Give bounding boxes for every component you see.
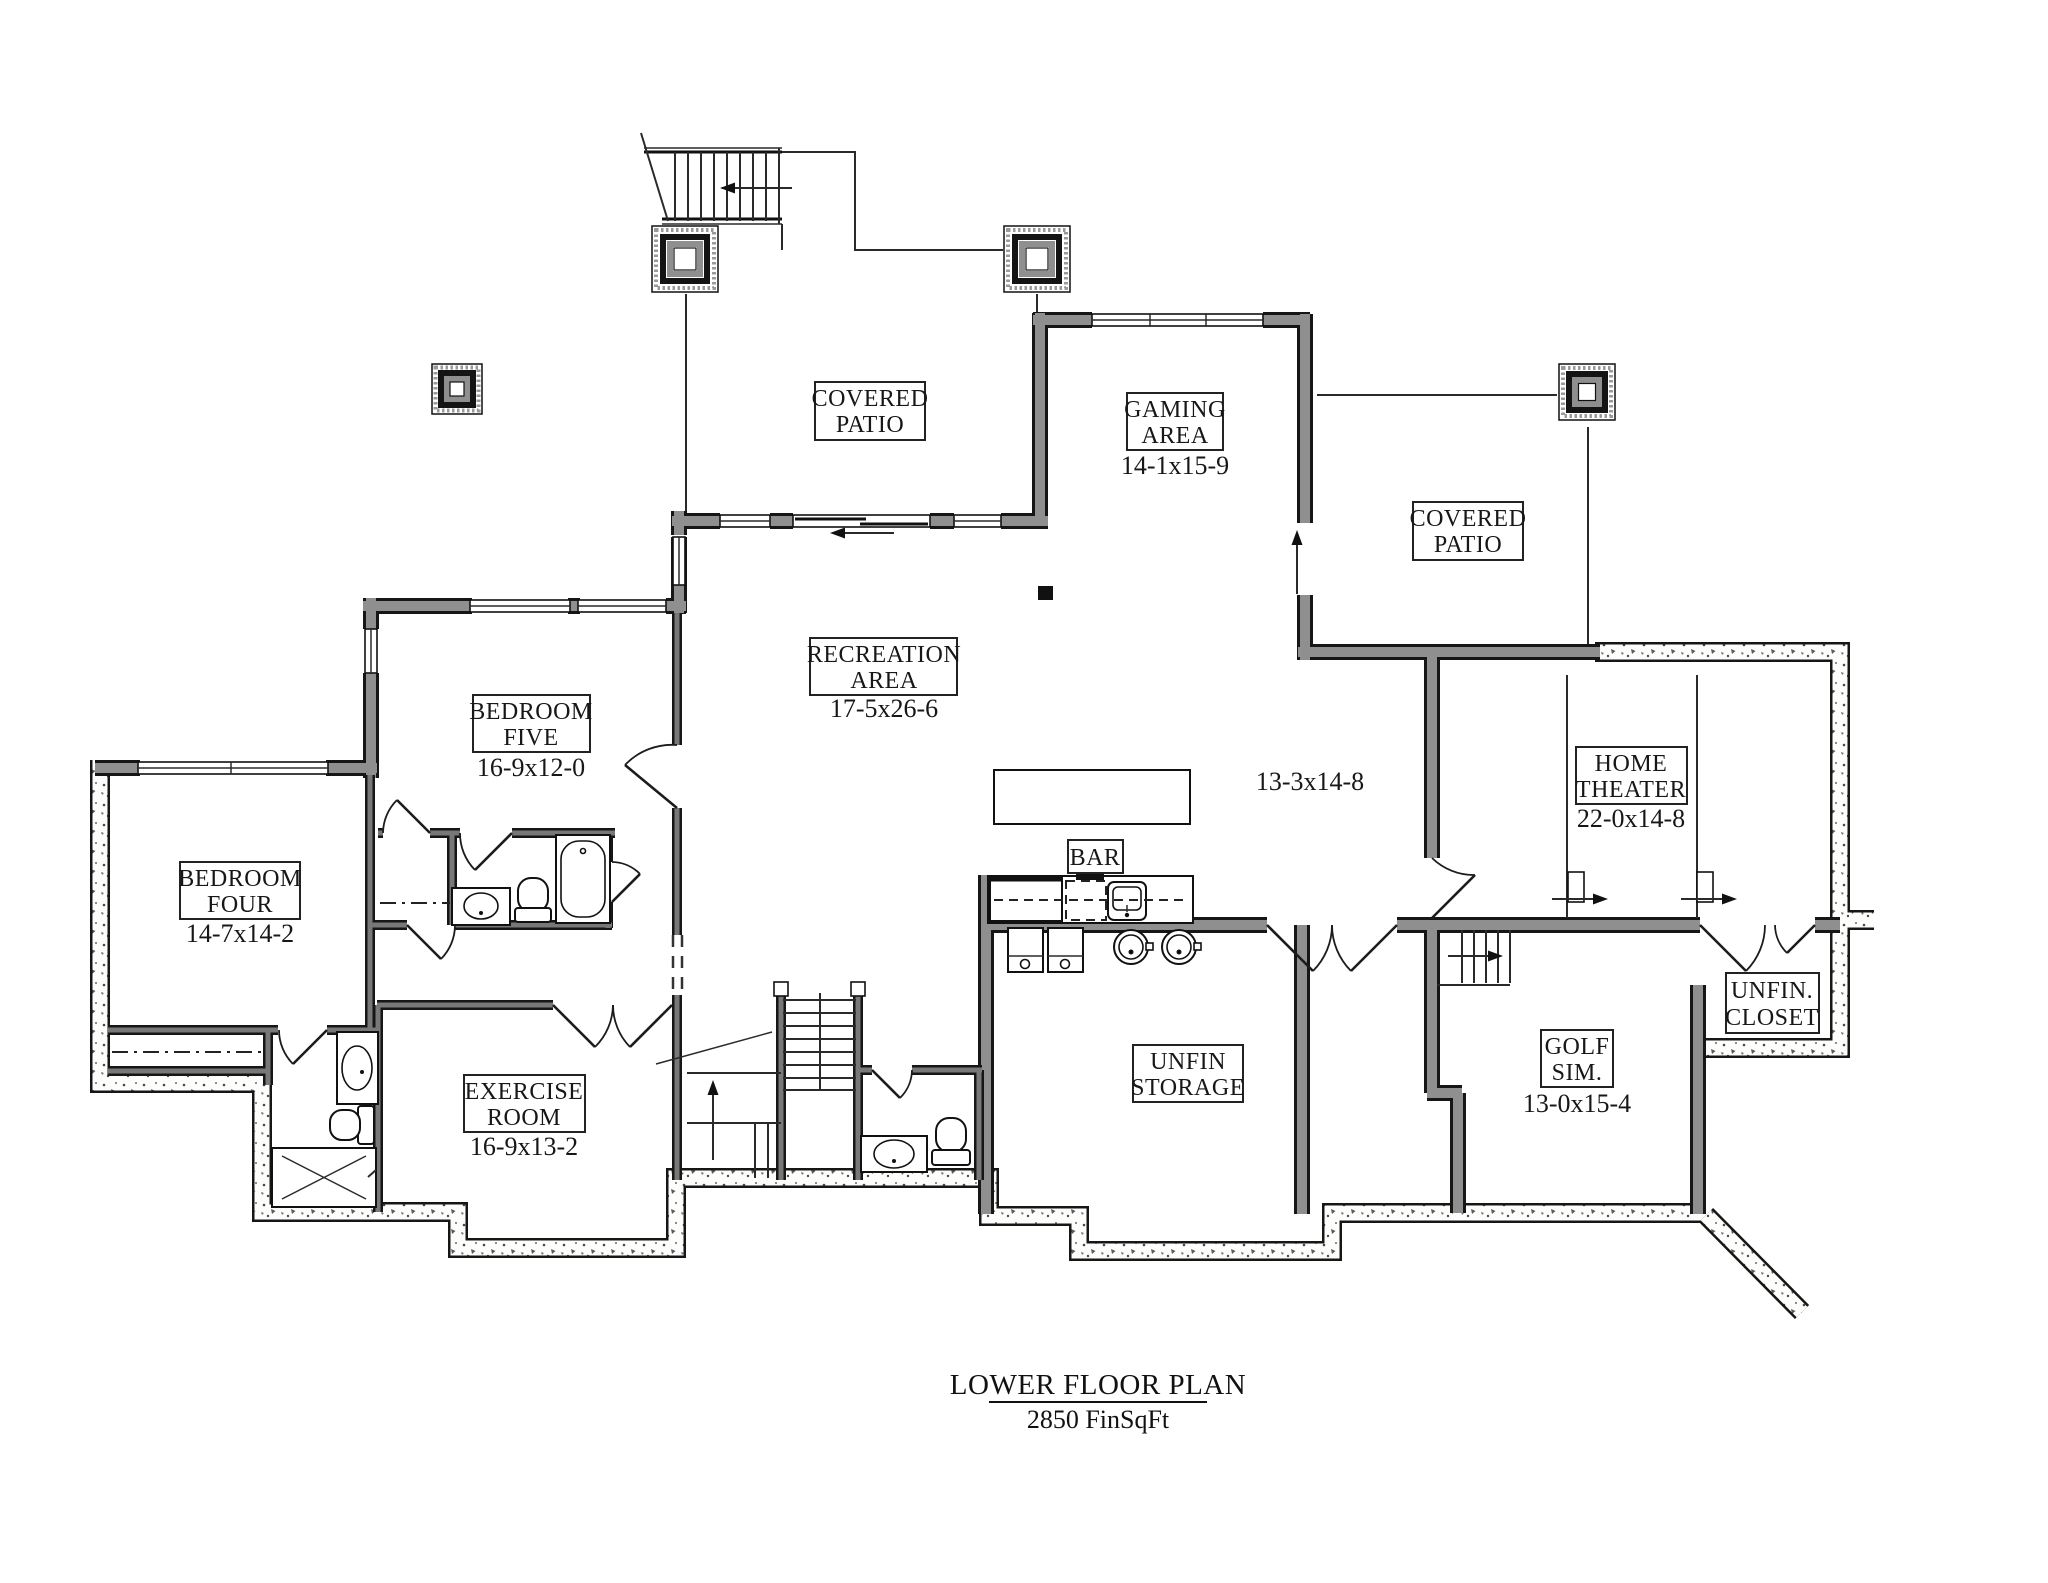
sliding-patio-door — [793, 515, 930, 527]
floor-plan-sheet: COVEREDPATIO COVEREDPATIO GAMINGAREA 14-… — [0, 0, 2048, 1583]
room-dims: 14-7x14-2 — [186, 919, 294, 948]
golf-stair-nook — [1437, 930, 1510, 985]
room-dims: 17-5x26-6 — [830, 694, 938, 723]
room-label-unfin-closet: UNFIN.CLOSET — [1725, 973, 1819, 1033]
floor-plan-drawing: COVEREDPATIO COVEREDPATIO GAMINGAREA 14-… — [0, 0, 2048, 1583]
door-bedroom-five-bath — [460, 833, 512, 870]
window-bedroom-five-west — [365, 629, 377, 673]
sheet-title: LOWER FLOOR PLAN — [950, 1369, 1246, 1401]
window-bedroom-five-north-2 — [578, 600, 666, 612]
sink-vanity — [861, 1136, 927, 1172]
step-up-arrow — [1593, 894, 1608, 905]
toilet — [330, 1106, 374, 1144]
svg-text:UNFIN.CLOSET: UNFIN.CLOSET — [1725, 978, 1819, 1031]
cased-opening-beam — [673, 935, 682, 995]
room-label-exercise-room: EXERCISEROOM 16-9x13-2 — [464, 1075, 585, 1161]
room-dims: 14-1x15-9 — [1121, 451, 1229, 480]
door-bath-to-recreation — [612, 862, 640, 902]
title-block: LOWER FLOOR PLAN 2850 FinSqFt — [950, 1369, 1246, 1434]
shower — [272, 1148, 376, 1207]
room-label-home-theater: HOMETHEATER 22-0x14-8 — [1576, 747, 1687, 833]
svg-text:BAR: BAR — [1070, 845, 1121, 871]
keg — [1114, 930, 1153, 964]
french-door-exercise-right — [613, 1005, 672, 1047]
sheet-subtitle: 2850 FinSqFt — [1027, 1405, 1170, 1434]
door-bedroom-five-closet — [383, 800, 430, 833]
column-pillar — [652, 226, 718, 292]
double-door-storage-right — [1332, 925, 1397, 971]
main-stairs — [656, 982, 865, 1178]
newel-post — [851, 982, 865, 996]
window-bedroom-five-north-1 — [470, 600, 570, 612]
room-dims: 16-9x13-2 — [470, 1132, 578, 1161]
room-label-covered-patio-right: COVEREDPATIO — [1410, 502, 1527, 560]
door-unfin-closet — [1775, 925, 1815, 953]
door-bedroom-four — [279, 1030, 327, 1064]
door-home-theater-west — [1432, 858, 1475, 918]
patio-door-arrow — [1292, 530, 1303, 545]
door-stair-bath — [872, 1070, 912, 1098]
door-hall — [407, 925, 455, 959]
door-bedroom-five — [625, 745, 677, 808]
room-label-recreation-area: RECREATIONAREA 17-5x26-6 — [807, 638, 961, 723]
toilet — [515, 878, 551, 922]
room-dims: 13-0x15-4 — [1523, 1089, 1631, 1118]
room-label-bar: BAR — [1068, 840, 1123, 873]
column-pillar — [1004, 226, 1070, 292]
room-label-golf-sim: GOLFSIM. 13-0x15-4 — [1523, 1030, 1631, 1118]
keg — [1162, 930, 1201, 964]
room-dims: 22-0x14-8 — [1577, 804, 1685, 833]
french-door-exercise-left — [553, 1005, 613, 1047]
column-pillar — [432, 364, 482, 414]
room-label-bedroom-four: BEDROOMFOUR 14-7x14-2 — [178, 862, 302, 948]
door-theater-hall — [1700, 925, 1765, 971]
room-label-unfin-storage: UNFINSTORAGE — [1131, 1045, 1245, 1102]
stair-up-arrow — [1488, 951, 1503, 962]
window-bedroom-four — [138, 762, 328, 774]
room-label-bedroom-five: BEDROOMFIVE 16-9x12-0 — [469, 695, 593, 782]
window-recreation-west — [673, 537, 685, 585]
column-pillar — [1559, 364, 1615, 420]
door-flow-arrows — [830, 528, 1303, 595]
patio-door-arrow — [830, 528, 845, 539]
support-post — [1038, 586, 1053, 600]
window-recreation-north-2 — [954, 515, 1001, 527]
patio-pillars — [432, 226, 1615, 420]
room-dims: 16-9x12-0 — [477, 753, 585, 782]
room-label-gaming-area: GAMINGAREA 14-1x15-9 — [1121, 393, 1229, 480]
bathtub — [556, 835, 610, 923]
newel-post — [774, 982, 788, 996]
toilet — [932, 1118, 970, 1165]
window-recreation-north-1 — [720, 515, 770, 527]
bar-counter — [988, 872, 1193, 923]
window-gaming-north — [1092, 314, 1263, 326]
stair-up-arrow — [708, 1080, 719, 1095]
step-up-arrow — [1722, 894, 1737, 905]
sink-vanity — [337, 1032, 378, 1104]
windows — [138, 314, 1263, 774]
under-counter-cabinet — [1048, 928, 1083, 972]
room-label-covered-patio-left: COVEREDPATIO — [812, 382, 929, 440]
sink-vanity — [452, 888, 510, 925]
svg-text:GOLFSIM.: GOLFSIM. — [1545, 1034, 1610, 1086]
open-area-dims: 13-3x14-8 — [1256, 767, 1364, 796]
under-counter-cabinet — [1008, 928, 1043, 972]
pool-table — [994, 770, 1190, 824]
